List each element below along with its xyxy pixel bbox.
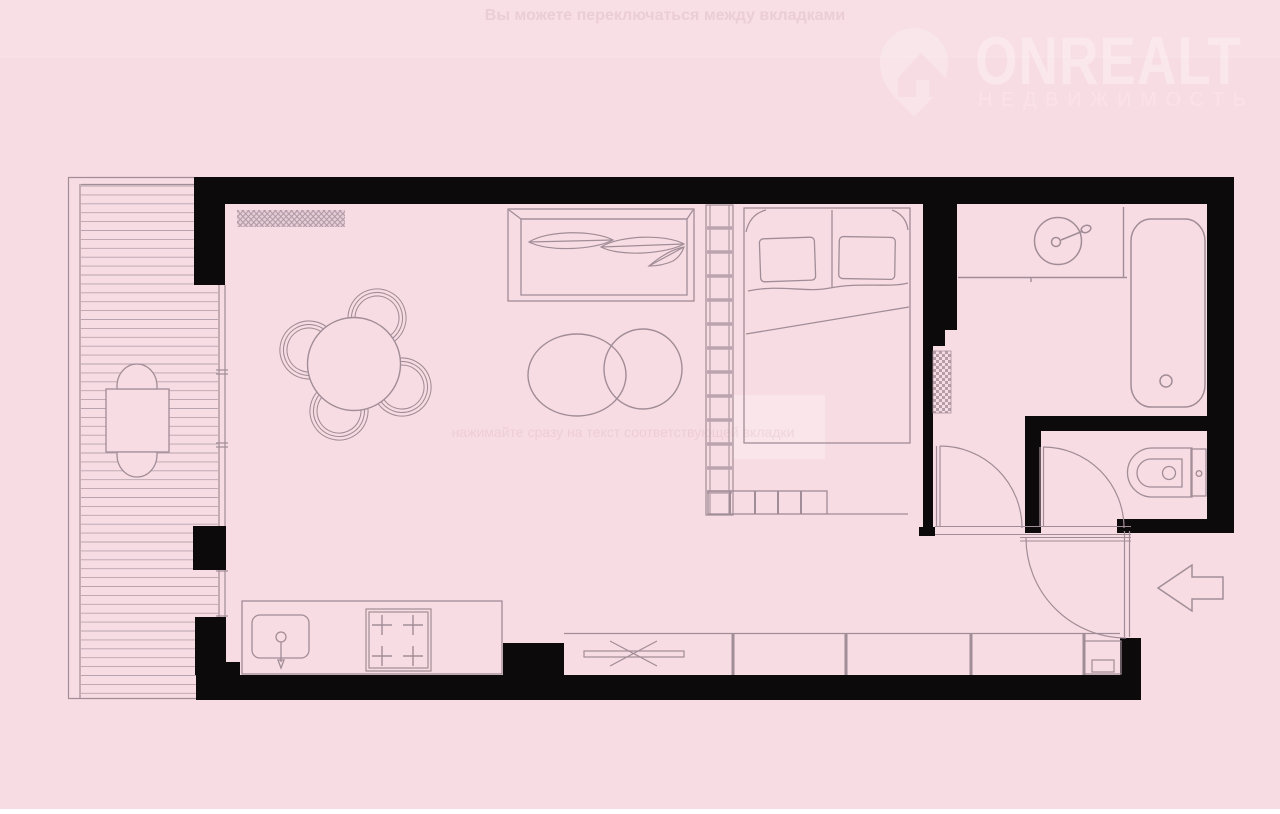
svg-text:нажимайте сразу на текст соотв: нажимайте сразу на текст соответствующей… bbox=[452, 424, 795, 440]
svg-text:НЕДВИЖИМОСТЬ: НЕДВИЖИМОСТЬ bbox=[978, 89, 1254, 111]
svg-text:Вы можете переключаться между: Вы можете переключаться между вкладками bbox=[485, 7, 845, 24]
